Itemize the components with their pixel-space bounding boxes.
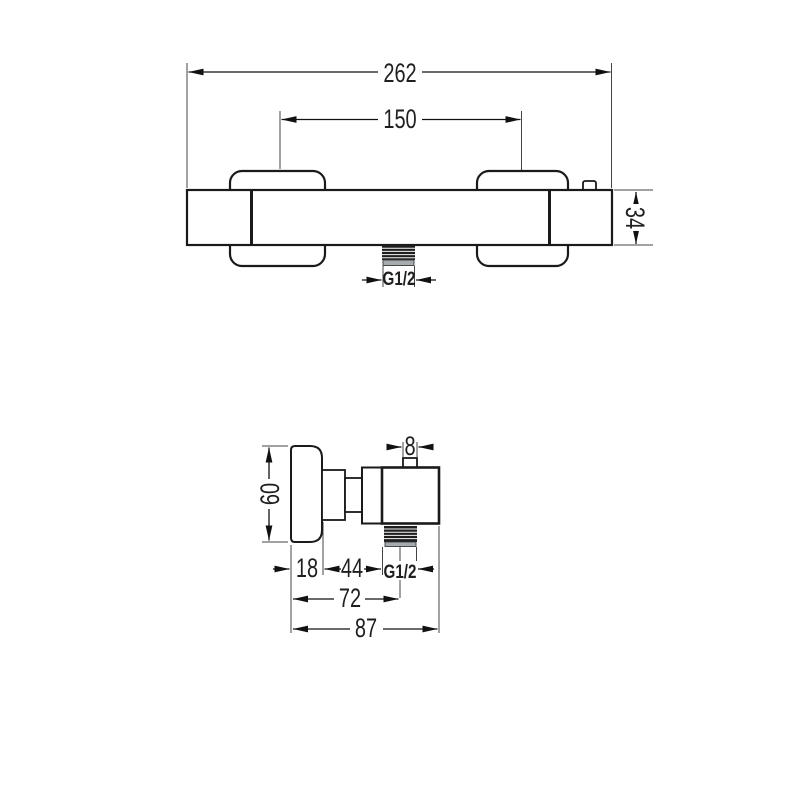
drawing-svg: 262 150 34 G1/2 xyxy=(0,0,800,800)
body-connector xyxy=(362,468,382,524)
dim-44-label: 44 xyxy=(341,553,363,584)
side-view: 60 8 18 44 G1/2 72 87 xyxy=(255,431,439,644)
dim-87-label: 87 xyxy=(355,613,377,644)
handle-step-1 xyxy=(322,470,345,520)
dim-18-label: 18 xyxy=(296,553,318,584)
handle-step-2 xyxy=(345,478,362,512)
handle-knob-profile xyxy=(291,446,322,542)
dim-g12-front-label: G1/2 xyxy=(383,267,416,289)
dim-60-label: 60 xyxy=(255,483,286,505)
dim-262-label: 262 xyxy=(383,58,416,89)
outlet-thread-side xyxy=(384,526,417,547)
dim-g12-side-label: G1/2 xyxy=(384,560,417,582)
body-square xyxy=(382,468,439,524)
dim-8-label: 8 xyxy=(404,431,415,462)
shower-mixer-dimension-drawing: 262 150 34 G1/2 xyxy=(0,0,800,800)
dim-72-label: 72 xyxy=(339,583,361,614)
outlet-thread-front xyxy=(382,245,415,266)
front-view: 262 150 34 G1/2 xyxy=(187,58,653,289)
dim-34-label: 34 xyxy=(619,207,650,229)
dim-150-label: 150 xyxy=(383,104,416,135)
